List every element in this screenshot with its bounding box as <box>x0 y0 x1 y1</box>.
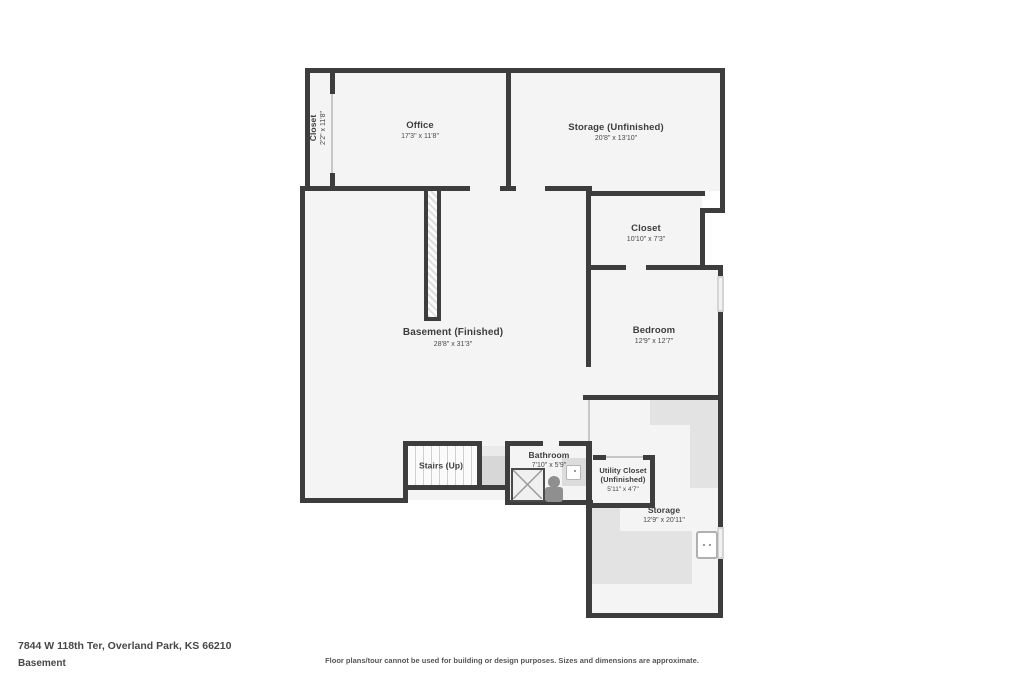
wall-segment <box>505 441 510 505</box>
property-address: 7844 W 118th Ter, Overland Park, KS 6621… <box>18 640 231 652</box>
stair-half-wall <box>424 191 441 321</box>
room-dims: 12'9" x 12'7" <box>633 338 675 347</box>
wall-segment <box>300 186 470 191</box>
wall-segment <box>477 441 482 490</box>
wall-segment <box>593 455 606 460</box>
wall-segment <box>506 73 511 191</box>
room-name: Office <box>401 120 439 132</box>
room-label-bathroom: Bathroom 7'10" x 5'9" <box>529 450 570 470</box>
wall-segment <box>586 613 723 618</box>
wall-segment <box>586 191 591 272</box>
wall-segment <box>403 485 510 490</box>
room-label-closet-left: Closet 2'2" x 11'8" <box>308 111 328 145</box>
room-name: Basement (Finished) <box>403 327 503 340</box>
wall-segment <box>586 270 591 367</box>
room-dims: 5'11" x 4'7" <box>599 486 646 494</box>
room-dims: 7'10" x 5'9" <box>529 461 570 470</box>
wall-segment <box>500 186 516 191</box>
room-name: Bathroom <box>529 450 570 461</box>
room-label-basement: Basement (Finished) 28'8" x 31'3" <box>403 327 503 349</box>
wall-segment <box>586 265 626 270</box>
shower-x-icon <box>513 470 542 499</box>
wall-segment <box>330 71 335 94</box>
wall-segment <box>403 441 408 490</box>
wall-segment <box>646 265 723 270</box>
wall-segment <box>583 395 723 400</box>
room-label-storage: Storage 12'9" x 20'11" <box>643 505 685 525</box>
wall-segment <box>403 441 482 446</box>
room-name: Storage <box>643 505 685 516</box>
wall-segment <box>700 208 705 270</box>
concrete-patch <box>690 425 718 488</box>
wall-segment <box>720 68 725 213</box>
room-label-bedroom: Bedroom 12'9" x 12'7" <box>633 325 675 347</box>
floor-plan-canvas: Closet 2'2" x 11'8" Office 17'3" x 11'8"… <box>0 0 1024 682</box>
room-label-stairs: Stairs (Up) <box>419 461 463 472</box>
wall-segment <box>305 68 725 73</box>
wall-segment <box>300 498 408 503</box>
room-name-qualifier: (Unfinished) <box>599 475 646 484</box>
concrete-patch <box>650 400 718 425</box>
wall-segment <box>300 186 305 503</box>
furnace-icon <box>696 531 718 559</box>
disclaimer-text: Floor plans/tour cannot be used for buil… <box>0 656 1024 665</box>
wall-segment <box>545 186 592 191</box>
toilet-icon <box>544 476 564 503</box>
room-label-storage-unfinished: Storage (Unfinished) 20'8" x 13'10" <box>568 122 663 144</box>
closet-door-line <box>331 92 333 175</box>
room-dims: 12'9" x 20'11" <box>643 516 685 525</box>
room-name: Closet <box>308 111 319 145</box>
concrete-patch <box>592 531 692 584</box>
room-dims: 28'8" x 31'3" <box>403 340 503 349</box>
room-label-office: Office 17'3" x 11'8" <box>401 120 439 142</box>
concrete-patch <box>592 505 620 531</box>
room-name: Utility Closet <box>599 466 646 475</box>
bedroom-window <box>717 276 724 312</box>
room-label-closet: Closet 10'10" x 7'3" <box>627 223 665 245</box>
room-name: Stairs (Up) <box>419 461 463 472</box>
wall-segment <box>718 398 723 618</box>
wall-segment <box>505 441 543 446</box>
wall-segment <box>650 455 655 508</box>
storage-opening-line <box>588 400 590 443</box>
room-dims: 17'3" x 11'8" <box>401 133 439 142</box>
utility-door-line <box>606 456 645 458</box>
room-name: Bedroom <box>633 325 675 337</box>
room-name: Storage (Unfinished) <box>568 122 663 134</box>
wall-segment <box>586 191 705 196</box>
room-dims: 2'2" x 11'8" <box>319 111 328 145</box>
wall-segment <box>586 503 592 618</box>
room-dims: 20'8" x 13'10" <box>568 135 663 144</box>
room-label-utility-closet: Utility Closet (Unfinished) 5'11" x 4'7" <box>599 466 646 494</box>
shower-icon <box>511 468 545 502</box>
stair-landing-upper <box>480 446 508 456</box>
room-dims: 10'10" x 7'3" <box>627 236 665 245</box>
storage-wall-opening <box>717 527 724 559</box>
room-name: Closet <box>627 223 665 235</box>
stair-landing <box>480 456 508 487</box>
wall-segment <box>586 441 592 505</box>
